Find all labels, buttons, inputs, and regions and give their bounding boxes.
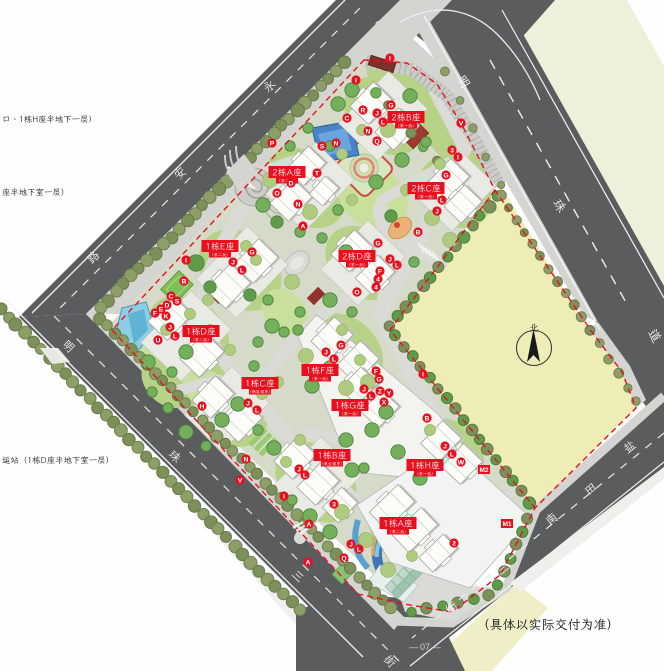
svg-text:S: S	[320, 143, 325, 150]
svg-text:I: I	[457, 154, 459, 161]
svg-text:J: J	[435, 208, 439, 215]
svg-text:G: G	[249, 249, 254, 256]
svg-text:J: J	[388, 256, 392, 263]
svg-text:I: I	[185, 257, 187, 264]
svg-text:I: I	[355, 77, 357, 84]
svg-text:E: E	[159, 306, 164, 313]
svg-text:2: 2	[452, 540, 456, 547]
svg-text:L: L	[440, 197, 444, 204]
svg-text:N: N	[334, 140, 339, 147]
svg-text:R: R	[361, 107, 366, 114]
svg-text:J: J	[246, 400, 250, 407]
svg-text:V: V	[459, 120, 464, 127]
svg-text:G: G	[375, 240, 380, 247]
svg-text:F: F	[378, 268, 382, 275]
svg-text:Q: Q	[374, 138, 379, 145]
svg-text:B: B	[416, 229, 421, 236]
svg-text:B: B	[425, 415, 430, 422]
svg-text:F: F	[153, 310, 157, 317]
svg-text:N: N	[366, 128, 371, 135]
svg-text:M1: M1	[502, 521, 511, 528]
svg-text:Z: Z	[378, 388, 382, 395]
svg-text:F: F	[374, 368, 378, 375]
svg-text:Y: Y	[387, 390, 392, 397]
svg-text:H: H	[200, 403, 205, 410]
svg-text:A: A	[307, 521, 312, 528]
svg-text:4: 4	[376, 276, 380, 283]
svg-text:J: J	[349, 541, 353, 548]
svg-text:L: L	[173, 333, 177, 340]
svg-text:G: G	[338, 342, 343, 349]
svg-text:L: L	[369, 393, 373, 400]
svg-text:A: A	[306, 559, 311, 566]
svg-text:A: A	[301, 223, 306, 230]
svg-text:G: G	[443, 172, 448, 179]
svg-text:N: N	[296, 201, 301, 208]
svg-text:K: K	[164, 313, 169, 320]
svg-text:V: V	[238, 477, 243, 484]
svg-text:L: L	[303, 472, 307, 479]
svg-text:4: 4	[374, 284, 378, 291]
svg-text:N: N	[244, 456, 249, 463]
svg-text:I: I	[283, 493, 285, 500]
svg-text:D: D	[289, 180, 294, 187]
svg-text:O: O	[354, 289, 359, 296]
svg-text:I: I	[422, 371, 424, 378]
svg-text:J: J	[231, 259, 235, 266]
svg-text:L: L	[332, 356, 336, 363]
svg-text:G: G	[376, 376, 381, 383]
svg-text:X: X	[382, 399, 387, 406]
svg-text:P: P	[270, 140, 275, 147]
svg-text:J: J	[168, 324, 172, 331]
svg-text:U: U	[156, 337, 161, 344]
svg-text:L: L	[395, 262, 399, 269]
svg-text:J: J	[443, 443, 447, 450]
svg-text:G: G	[388, 102, 393, 109]
svg-text:I: I	[389, 55, 391, 62]
svg-text:M2: M2	[479, 467, 488, 474]
svg-text:L: L	[450, 451, 454, 458]
svg-text:J: J	[324, 349, 328, 356]
svg-text:S: S	[175, 298, 180, 305]
svg-text:3: 3	[332, 501, 336, 508]
svg-text:L: L	[357, 546, 361, 553]
svg-text:B: B	[182, 278, 187, 285]
svg-text:W: W	[458, 459, 465, 466]
svg-text:C: C	[345, 115, 350, 122]
svg-text:J: J	[375, 110, 379, 117]
svg-text:Q: Q	[341, 555, 346, 562]
svg-text:D: D	[165, 302, 170, 309]
svg-text:— 07 —: — 07 —	[409, 642, 441, 652]
svg-text:L: L	[255, 407, 259, 414]
svg-text:J: J	[297, 466, 301, 473]
svg-text:L: L	[240, 267, 244, 274]
svg-text:O: O	[274, 190, 279, 197]
svg-text:3: 3	[450, 147, 454, 154]
svg-text:L: L	[381, 119, 385, 126]
svg-text:J: J	[362, 386, 366, 393]
